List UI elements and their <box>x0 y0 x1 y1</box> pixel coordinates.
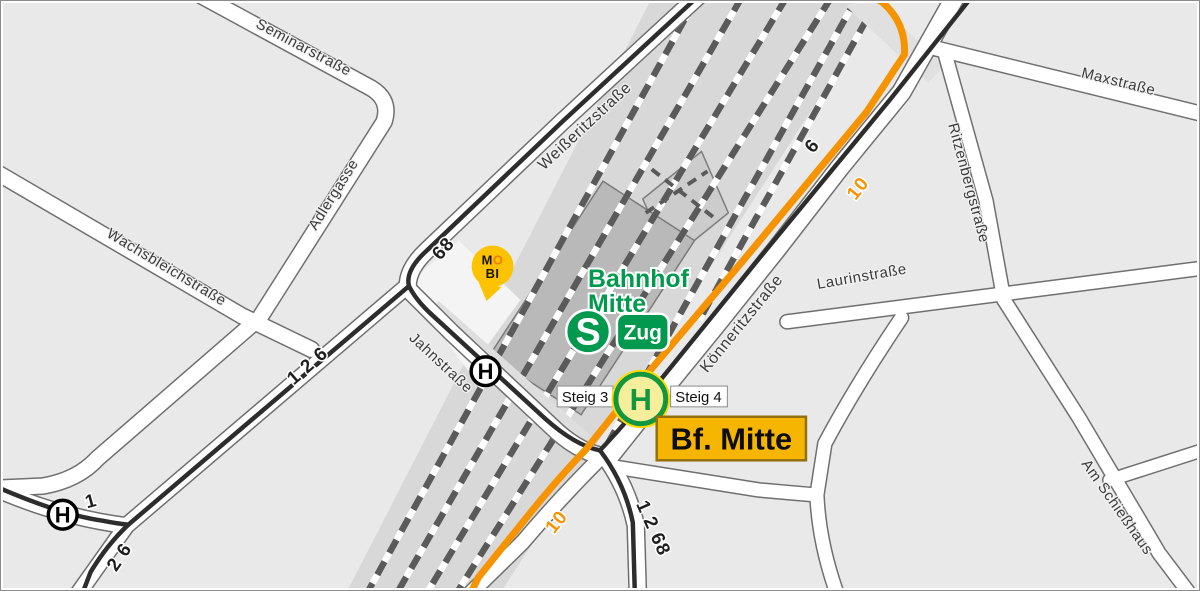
station-name-line1: Bahnhof <box>588 266 690 293</box>
tram-stop-jahnstrasse[interactable]: H <box>471 357 500 386</box>
bus-stop-bf-mitte-letter: H <box>630 382 652 417</box>
platform3-text: Steig 3 <box>562 390 608 406</box>
mobi-label-line2: BI <box>486 266 500 281</box>
zug-badge[interactable]: Zug <box>617 314 669 351</box>
tram-stop-jahnstrasse-letter: H <box>478 359 494 384</box>
station-badge: Bf. Mitte <box>657 417 806 461</box>
sbahn-logo[interactable]: S <box>566 310 610 354</box>
tram-stop-west-letter: H <box>55 503 71 528</box>
map-canvas: Seminarstraße Adlergasse Wachsbleichstra… <box>3 3 1197 588</box>
city-map: Seminarstraße Adlergasse Wachsbleichstra… <box>0 0 1200 591</box>
tram-stop-west[interactable]: H <box>48 500 77 529</box>
sbahn-logo-letter: S <box>575 311 600 353</box>
platform4-text: Steig 4 <box>675 390 721 406</box>
platform4-label: Steig 4 <box>671 386 728 407</box>
mobi-label-line1: MO <box>482 252 504 267</box>
station-badge-text: Bf. Mitte <box>671 421 793 456</box>
zug-badge-label: Zug <box>624 322 662 345</box>
platform3-label: Steig 3 <box>557 386 613 407</box>
